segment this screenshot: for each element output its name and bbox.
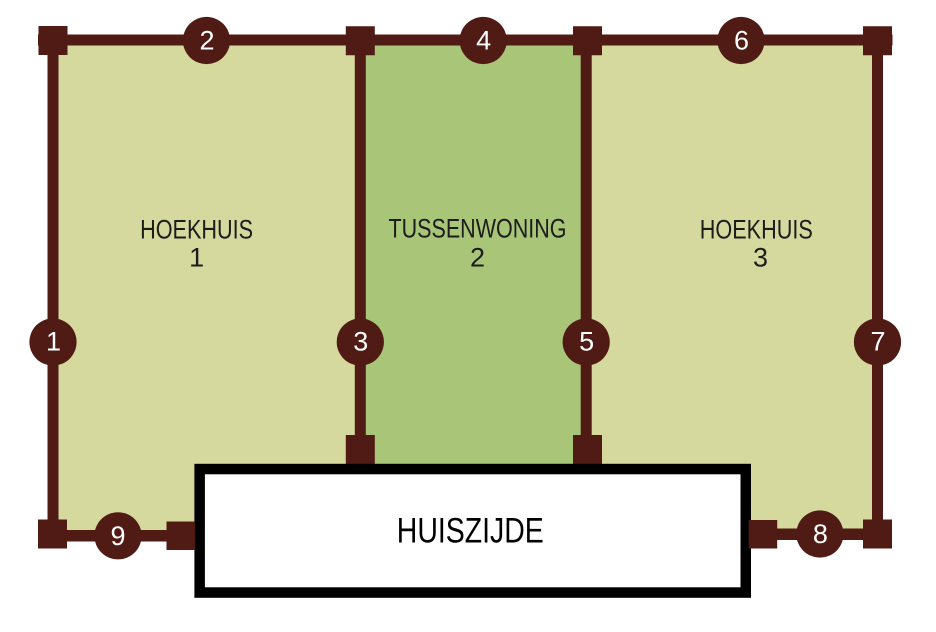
svg-text:5: 5 [579, 327, 594, 357]
svg-text:3: 3 [353, 327, 368, 357]
svg-text:HUISZIJDE: HUISZIJDE [397, 512, 544, 551]
svg-text:1: 1 [46, 327, 61, 357]
svg-text:2: 2 [199, 26, 214, 56]
svg-text:HOEKHUIS: HOEKHUIS [700, 215, 813, 245]
svg-text:7: 7 [870, 327, 885, 357]
svg-text:3: 3 [753, 243, 768, 273]
svg-text:HOEKHUIS: HOEKHUIS [140, 215, 253, 245]
svg-text:6: 6 [734, 26, 749, 56]
svg-text:TUSSENWONING: TUSSENWONING [389, 214, 567, 244]
svg-text:1: 1 [189, 243, 204, 273]
svg-text:9: 9 [110, 521, 125, 551]
svg-text:4: 4 [476, 26, 491, 56]
svg-text:8: 8 [813, 519, 828, 549]
svg-text:2: 2 [470, 243, 485, 273]
